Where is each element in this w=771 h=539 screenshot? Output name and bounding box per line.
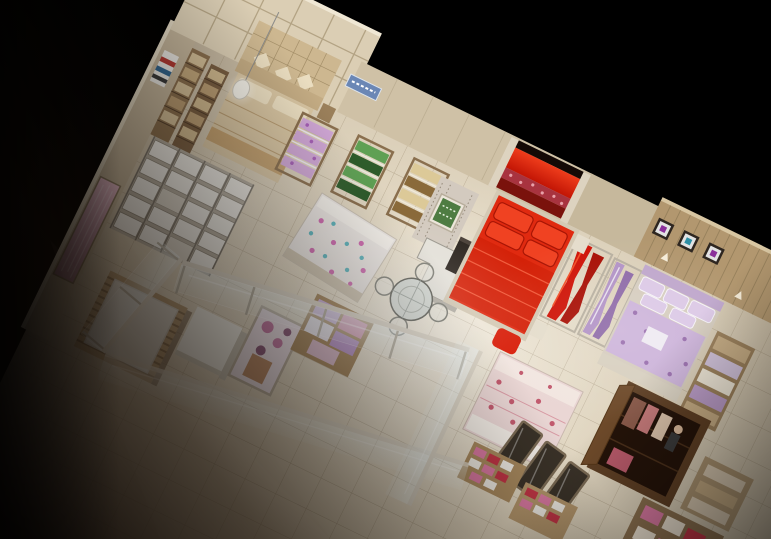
store-render-scene xyxy=(0,0,771,539)
shadow-bottom-right xyxy=(0,0,771,539)
render-canvas xyxy=(0,0,771,539)
